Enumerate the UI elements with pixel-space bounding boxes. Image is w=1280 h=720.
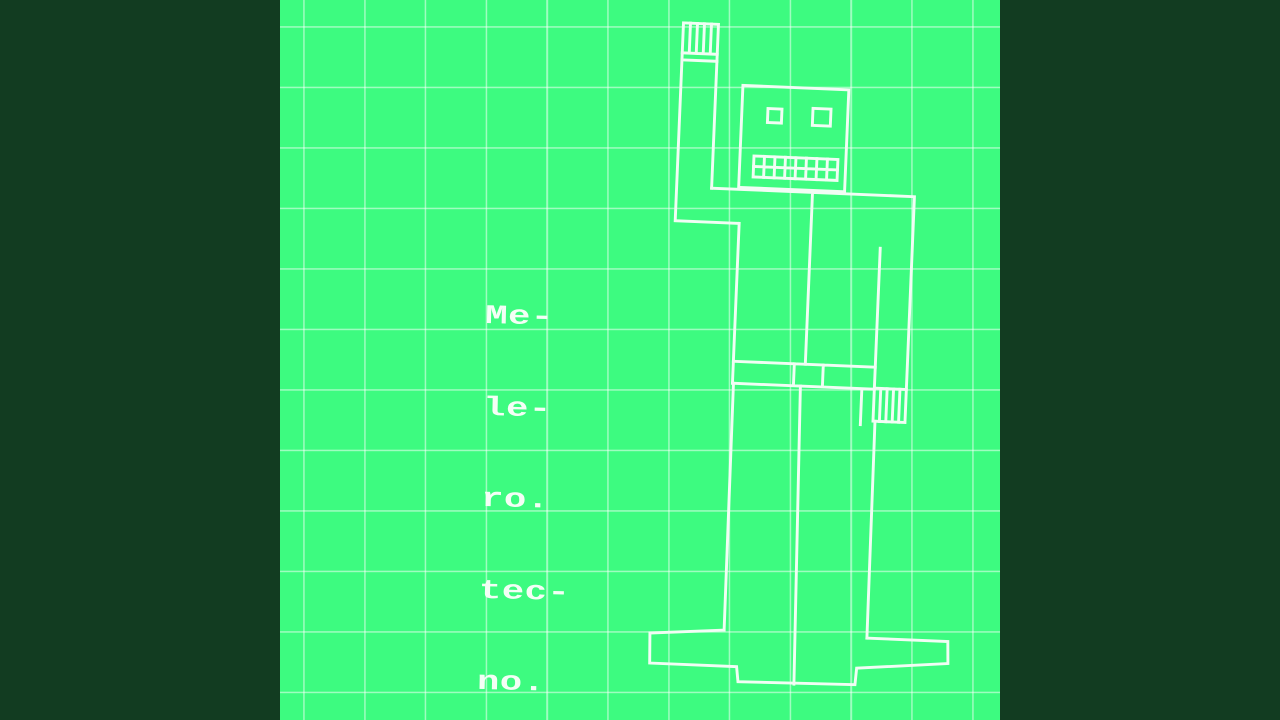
left-letterbox xyxy=(0,0,280,720)
title-line: le- xyxy=(483,393,620,427)
title-line: Me- xyxy=(485,302,622,336)
title-line: tec- xyxy=(479,576,616,610)
album-art: Me- le- ro. tec- no. xyxy=(280,0,1000,720)
robot-left-eye xyxy=(767,108,782,123)
robot-feet xyxy=(648,627,949,690)
robot-legs xyxy=(721,383,877,687)
robot-illustration xyxy=(280,0,1000,720)
artwork-stage: Me- le- ro. tec- no. xyxy=(0,0,1280,720)
robot-left-hand-stripes-icon xyxy=(682,23,718,54)
title-line: no. xyxy=(477,668,614,702)
title-line: ro. xyxy=(481,485,618,519)
robot-outline xyxy=(648,23,974,691)
robot-right-hand xyxy=(873,388,906,422)
robot-right-eye xyxy=(812,108,831,126)
right-letterbox xyxy=(1000,0,1280,720)
robot-belt xyxy=(732,361,875,389)
robot-right-arm xyxy=(860,248,880,425)
title-text: Me- le- ro. tec- no. xyxy=(475,241,623,720)
robot-left-arm xyxy=(675,60,745,223)
robot-right-hand-stripes-icon xyxy=(879,388,900,422)
robot-mouth xyxy=(753,156,838,180)
